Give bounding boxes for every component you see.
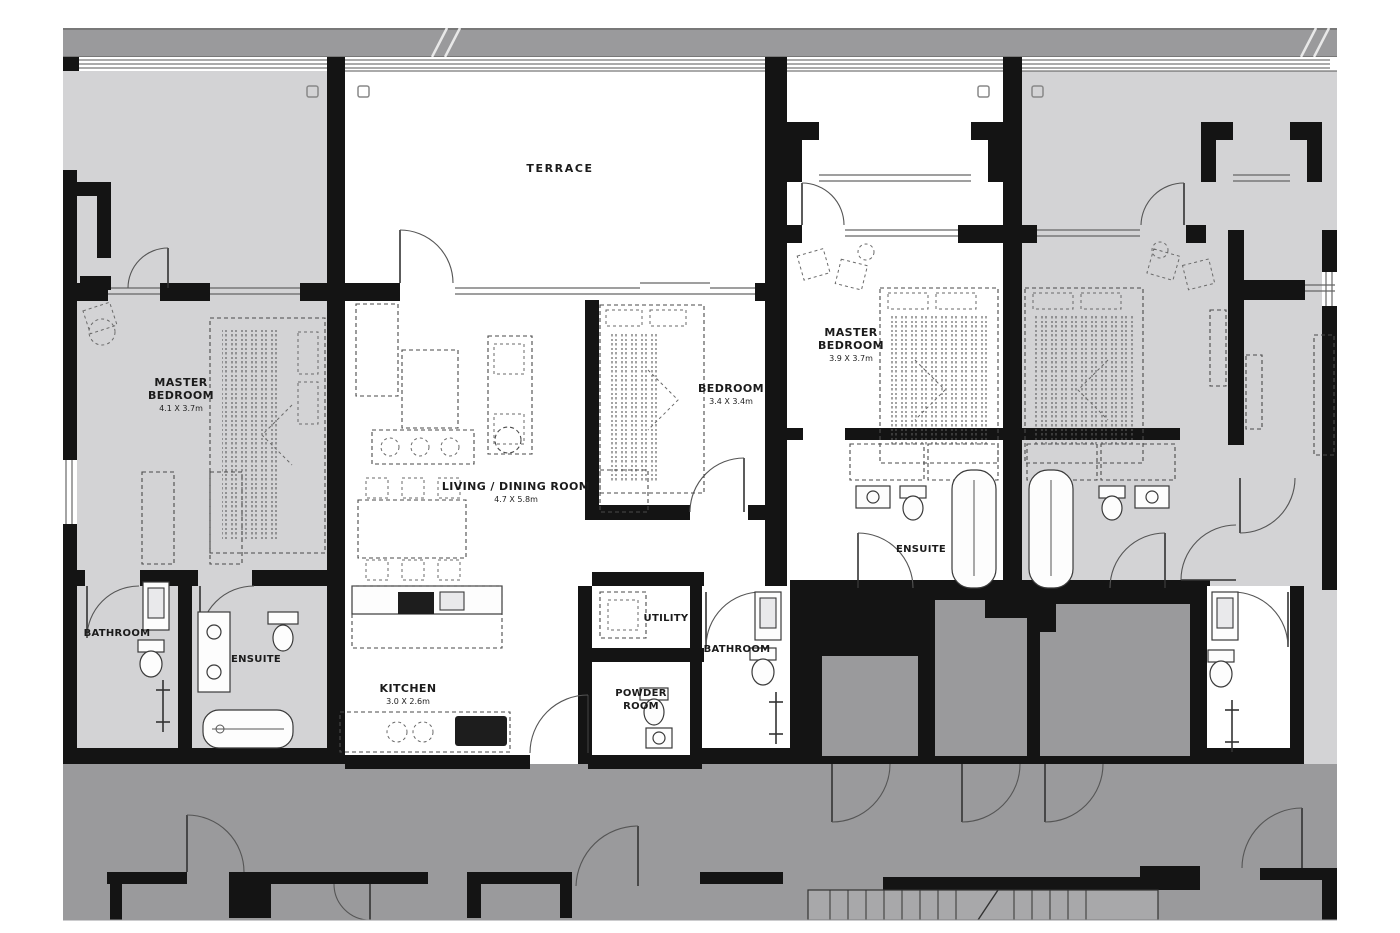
label-master-left-2: BEDROOM (148, 389, 214, 402)
service-core (790, 580, 1210, 764)
label-powder-1: POWDER (615, 688, 667, 699)
label-powder-2: ROOM (623, 701, 659, 712)
label-ensuite-left: ENSUITE (231, 654, 281, 665)
label-master-right-1: MASTER (824, 326, 877, 339)
label-kitchen-dims: 3.0 X 2.6m (386, 697, 430, 706)
label-bathroom-center: BATHROOM (704, 644, 771, 655)
label-ensuite-right: ENSUITE (896, 544, 946, 555)
roof-band (63, 28, 1337, 57)
label-bathroom-left: BATHROOM (84, 628, 151, 639)
kitchen-hob (398, 592, 434, 614)
floor-plan-drawing: TERRACE MASTER BEDROOM 4.1 X 3.7m LIVING… (0, 0, 1400, 933)
railing-strip (63, 57, 1337, 71)
label-master-right-2: BEDROOM (818, 339, 884, 352)
lift-shaft-1 (822, 656, 918, 756)
label-terrace: TERRACE (526, 162, 593, 175)
label-bedroom: BEDROOM (698, 382, 764, 395)
label-utility: UTILITY (644, 613, 689, 624)
label-master-right-dims: 3.9 X 3.7m (829, 354, 873, 363)
lift-shaft-3 (1040, 604, 1190, 756)
stair (808, 890, 1158, 920)
label-kitchen: KITCHEN (380, 682, 437, 695)
label-living-dining: LIVING / DINING ROOM (442, 480, 590, 493)
kitchen-appliance (455, 716, 507, 746)
label-bedroom-dims: 3.4 X 3.4m (709, 397, 753, 406)
label-living-dining-dims: 4.7 X 5.8m (494, 495, 538, 504)
unit-left-fill (63, 71, 327, 764)
label-master-left-dims: 4.1 X 3.7m (159, 404, 203, 413)
lift-shaft-2 (935, 600, 1027, 756)
label-master-left-1: MASTER (154, 376, 207, 389)
floor-plan-page: TERRACE MASTER BEDROOM 4.1 X 3.7m LIVING… (0, 0, 1400, 933)
